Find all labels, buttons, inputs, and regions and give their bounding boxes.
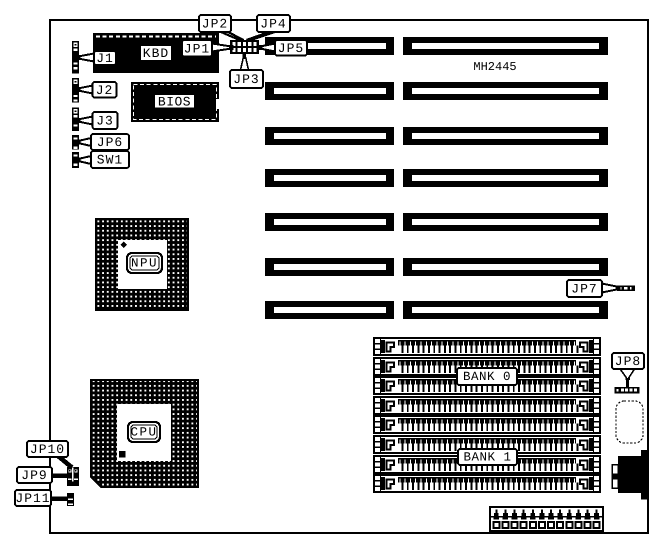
svg-text:JP11: JP11 xyxy=(15,491,50,506)
svg-text:JP7: JP7 xyxy=(571,282,597,297)
svg-text:MH2445: MH2445 xyxy=(473,60,516,74)
svg-text:JP4: JP4 xyxy=(260,17,286,32)
svg-text:JP3: JP3 xyxy=(233,72,259,87)
svg-text:KBD: KBD xyxy=(143,46,169,61)
svg-text:JP1: JP1 xyxy=(184,41,210,56)
svg-text:JP10: JP10 xyxy=(30,442,65,457)
svg-text:JP8: JP8 xyxy=(615,354,641,369)
svg-text:J1: J1 xyxy=(96,51,114,66)
svg-text:JP2: JP2 xyxy=(202,17,228,32)
svg-text:JP6: JP6 xyxy=(97,135,123,150)
svg-text:BIOS: BIOS xyxy=(158,94,191,109)
svg-text:JP5: JP5 xyxy=(278,41,304,56)
svg-text:J3: J3 xyxy=(96,114,114,129)
svg-text:BANK 0: BANK 0 xyxy=(463,370,511,384)
svg-text:JP9: JP9 xyxy=(21,468,47,483)
svg-text:NPU: NPU xyxy=(131,257,158,271)
svg-text:SW1: SW1 xyxy=(97,153,123,168)
svg-text:CPU: CPU xyxy=(130,426,157,440)
svg-text:J2: J2 xyxy=(96,83,114,98)
svg-text:BANK 1: BANK 1 xyxy=(463,451,511,465)
